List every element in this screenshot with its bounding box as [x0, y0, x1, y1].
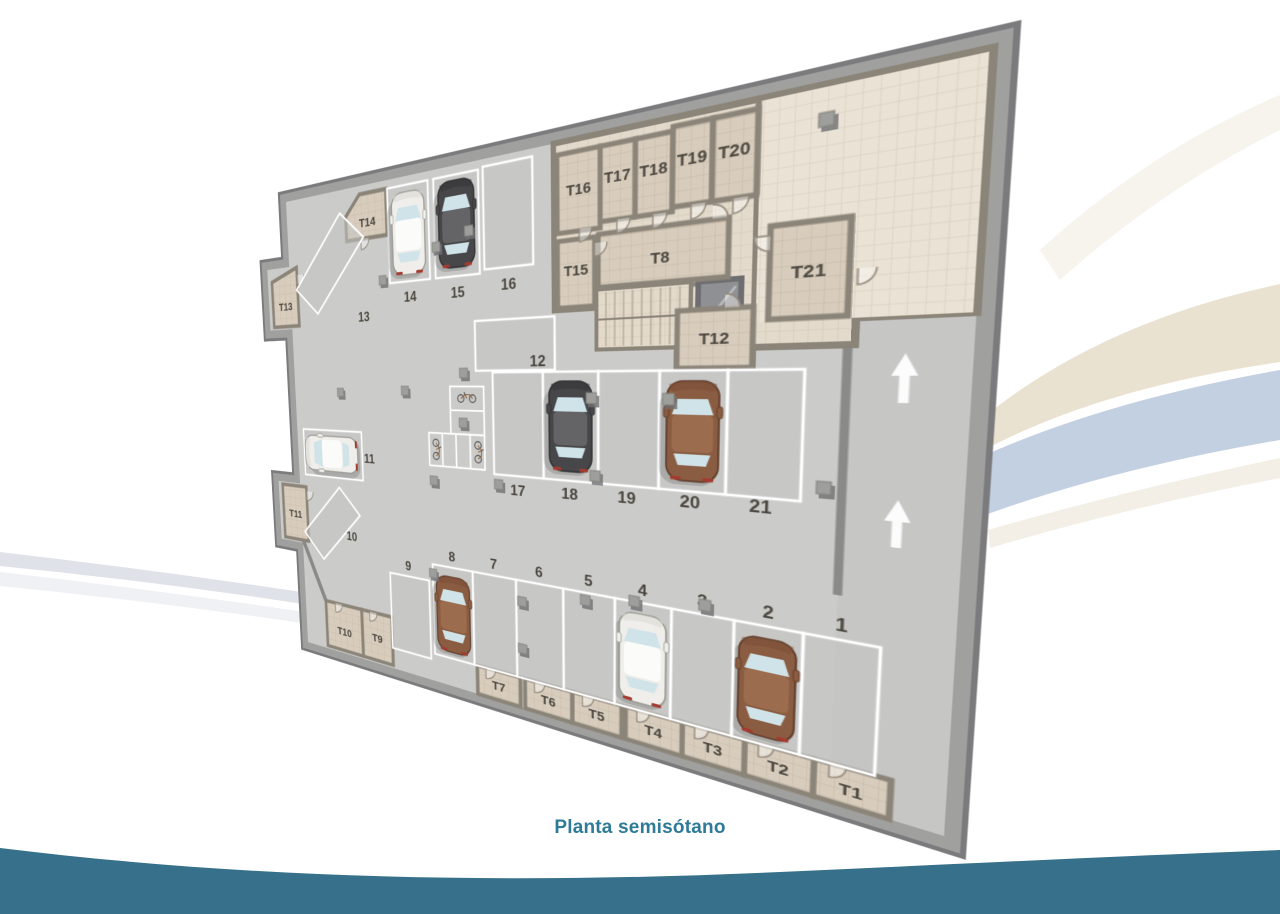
parking-space-label: 11 — [364, 452, 375, 467]
parking-space-label: 16 — [501, 276, 517, 295]
trastero-T12: T12 — [677, 307, 754, 369]
parking-space-label: 6 — [535, 564, 543, 582]
parking-space-label: 8 — [448, 550, 455, 566]
parking-space-label: 12 — [530, 353, 546, 371]
parking-space-label: 15 — [451, 284, 465, 302]
trastero-label: T8 — [650, 248, 670, 269]
parking-space-label: 19 — [617, 489, 635, 509]
trastero-T15: T15 — [558, 237, 595, 308]
parking-space-label: 18 — [561, 486, 578, 505]
parking-space-label: 20 — [680, 493, 701, 514]
parking-space-12: 12 — [475, 316, 555, 372]
car-top-view — [613, 609, 670, 715]
trastero-label: T12 — [699, 330, 731, 350]
trastero-label: T21 — [790, 260, 828, 284]
trastero-T21: T21 — [768, 217, 852, 320]
parking-space-label: 10 — [346, 530, 357, 546]
trastero-label: T13 — [279, 301, 294, 315]
trastero-T10: T10 — [326, 601, 363, 657]
car-top-view — [729, 632, 800, 750]
trastero-T19: T19 — [672, 118, 713, 207]
car-top-view — [386, 188, 427, 280]
parking-space-label: 9 — [405, 559, 411, 575]
parking-space-label: 2 — [762, 603, 774, 625]
trastero-label: T14 — [359, 214, 377, 231]
trastero-T16: T16 — [557, 146, 600, 233]
parking-space-label: 17 — [510, 483, 525, 501]
parking-space-label: 7 — [490, 557, 497, 574]
car-top-view — [432, 573, 474, 661]
parking-space-label: 13 — [358, 310, 370, 326]
decorative-swoosh-cream-3 — [1040, 95, 1280, 280]
plan-caption: Planta semisótano — [0, 817, 1280, 839]
car-top-view — [433, 176, 478, 273]
parking-space-label: 1 — [835, 615, 849, 638]
brochure-page: T1 T2 T3 T4 T5 T6 T7 T8 T9 T10 T11 T12 T… — [0, 0, 1280, 914]
trastero-label: T15 — [564, 261, 589, 281]
trastero-T20: T20 — [712, 109, 759, 202]
parking-space-label: 14 — [404, 289, 417, 306]
bottom-wave — [0, 848, 1280, 914]
parking-space-label: 5 — [584, 573, 592, 592]
trastero-T17: T17 — [600, 139, 635, 222]
trastero-T18: T18 — [635, 131, 673, 217]
trastero-label: T11 — [289, 508, 303, 522]
parking-space-label: 21 — [749, 497, 772, 520]
trastero-T9: T9 — [362, 610, 394, 666]
